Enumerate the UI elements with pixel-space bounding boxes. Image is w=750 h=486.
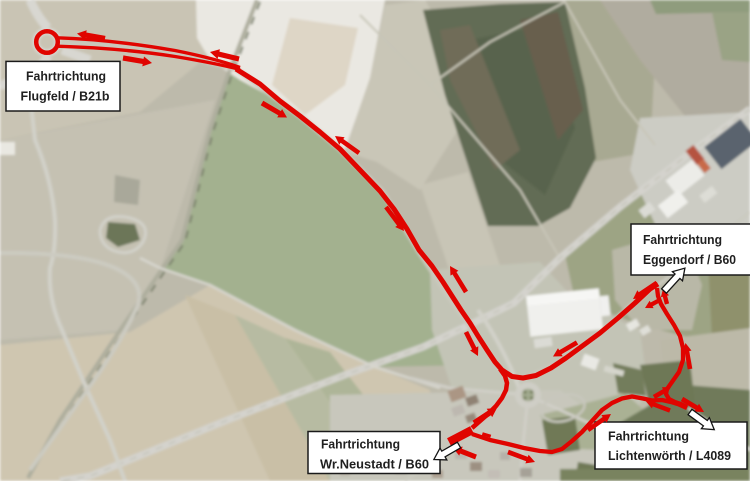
- svg-text:Flugfeld / B21b: Flugfeld / B21b: [21, 89, 110, 104]
- svg-text:Fahrtrichtung: Fahrtrichtung: [608, 429, 689, 444]
- svg-text:Fahrtrichtung: Fahrtrichtung: [643, 232, 722, 247]
- svg-text:Lichtenwörth / L4089: Lichtenwörth / L4089: [608, 448, 731, 463]
- svg-text:Wr.Neustadt / B60: Wr.Neustadt / B60: [320, 457, 429, 472]
- svg-text:Fahrtrichtung: Fahrtrichtung: [321, 437, 400, 452]
- svg-text:Fahrtrichtung: Fahrtrichtung: [26, 69, 106, 84]
- svg-text:Eggendorf / B60: Eggendorf / B60: [643, 252, 736, 267]
